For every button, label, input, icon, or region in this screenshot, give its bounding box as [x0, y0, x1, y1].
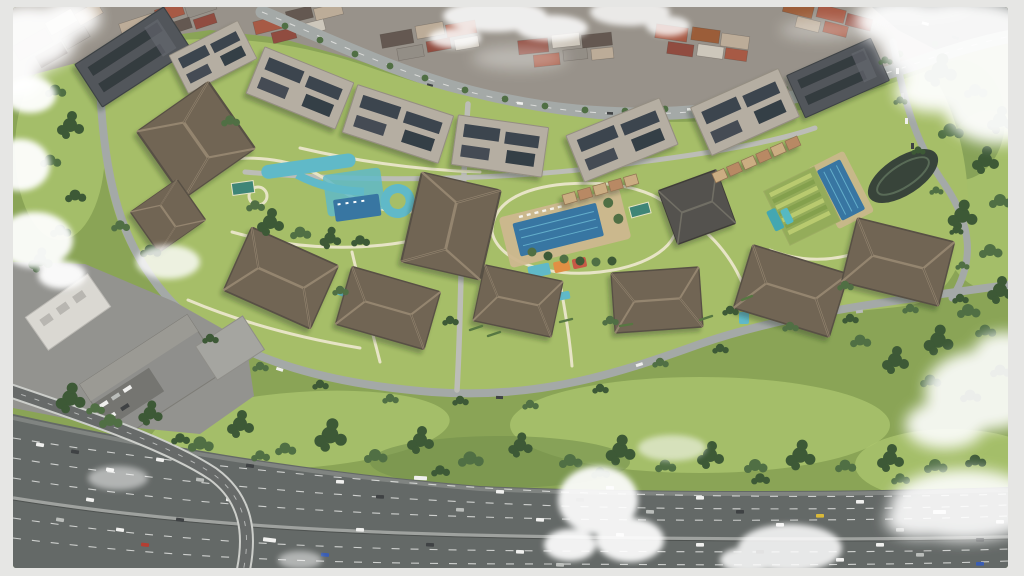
- atmospheric-haze: [13, 7, 1008, 568]
- aerial-render: [0, 0, 1024, 576]
- screenshot-canvas: [0, 0, 1024, 576]
